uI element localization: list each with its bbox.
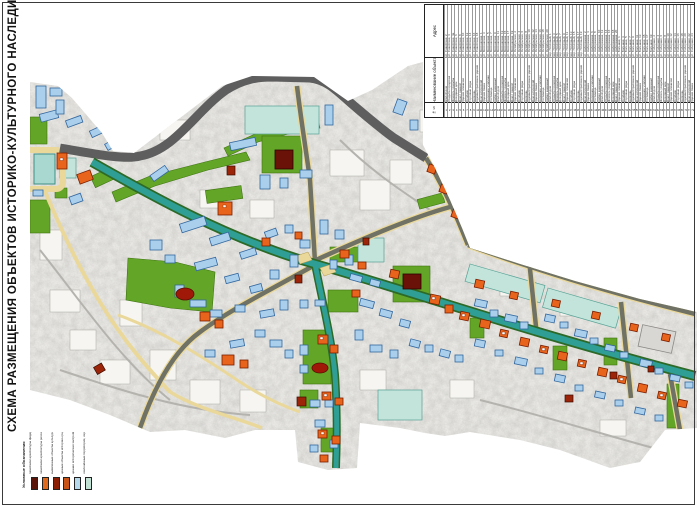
entry-name: Дом купеческий	[532, 57, 534, 102]
entry-address: ул. Большая, 17	[646, 5, 648, 57]
table-entry-column: ул. Соборная, 6Флигель усадьбы63	[659, 5, 662, 117]
entry-name: Амбар каменный	[546, 57, 548, 102]
entry-address: ул. Набережная, 18	[612, 5, 614, 57]
entry-name: Дом с лавкой	[563, 57, 565, 102]
legend-item-label: памятники архитектуры регионального знач…	[40, 432, 43, 474]
entry-name: Усадьба городская	[657, 57, 659, 102]
entry-address: ул. Советская, 8	[459, 5, 461, 57]
entry-name: Гостиница	[490, 57, 492, 102]
table-entry-column: ул. Большая, 9Административное здание55	[631, 5, 634, 117]
table-entry-column: ул. Октябрьская, 2Здание гимназии21	[513, 5, 516, 117]
entry-name: Дом купеческий	[480, 57, 482, 102]
entry-address: ул. Соборная, 6	[660, 5, 662, 57]
legend-item-swatch	[74, 477, 81, 490]
table-entry-column: пер. Почтовый, 5Флигель усадьбы33	[555, 5, 558, 117]
entry-name: Торговые ряды	[573, 57, 575, 102]
entry-name: Здание гимназии	[618, 57, 620, 102]
entry-name: Церковь	[577, 57, 579, 102]
legend-item-label: ценные объекты историко-градостроительно…	[61, 432, 64, 474]
entry-name: Гостиница	[594, 57, 596, 102]
legend-item-swatch	[42, 477, 49, 490]
entry-address: ул. Московская, 5	[487, 5, 489, 57]
entry-name: Здание гимназии	[670, 57, 672, 102]
entry-address: ул. Московская, 17	[507, 5, 509, 57]
entry-name: Торговые ряды	[521, 57, 523, 102]
table-entry-column: ул. Московская, 15Флигель усадьбы18	[503, 5, 506, 117]
entry-address: ул. Соборная, 12	[670, 5, 672, 57]
legend-item-swatch	[53, 477, 60, 490]
entry-name: Жилой дом	[445, 57, 447, 102]
table-entry-column: ул. Октябрьская, 6Торговые ряды23	[520, 5, 523, 117]
table-entry-column: ул. Соборная, 10Дом с лавкой65	[666, 5, 669, 117]
entry-address: ул. Советская, 16	[473, 5, 475, 57]
entry-address: ул. Набережная, 12	[601, 5, 603, 57]
entry-address: ул. Набережная, 4	[587, 5, 589, 57]
table-entry-column: ул. Набережная, 4Здание банка42	[586, 5, 589, 117]
table-entry-column: ул. Большая, 3Особняк52	[621, 5, 624, 117]
entry-name: Доходный дом	[507, 57, 509, 102]
table-entry-column: ул. Большая, 15Народное училище58	[642, 5, 645, 117]
entry-address: пер. Почтовый, 5	[556, 5, 558, 57]
table-entry-column: ул. Соборная, 20Административное здание7…	[683, 5, 686, 117]
entry-name: Административное здание	[580, 57, 582, 102]
entry-address: ул. Октябрьская, 10	[528, 5, 530, 57]
entry-address: ул. Московская, 11	[497, 5, 499, 57]
table-entry-column: ул. Октябрьская, 4Особняк22	[517, 5, 520, 117]
entry-address: ул. Октябрьская, 14	[535, 5, 537, 57]
entry-address: ул. Советская, 12	[466, 5, 468, 57]
legend-item-swatch	[63, 477, 70, 490]
entry-name: Здание банка	[483, 57, 485, 102]
entry-address: ул. Октябрьская, 16	[539, 5, 541, 57]
entry-name: Здание банка	[587, 57, 589, 102]
table-entry-column: пер. Почтовый, 7Доходный дом34	[558, 5, 561, 117]
table-entry-column: ул. Октябрьская, 12Дом купеческий26	[531, 5, 534, 117]
entry-name: Флигель усадьбы	[608, 57, 610, 102]
table-entry-column: пер. Почтовый, 13Особняк37	[569, 5, 572, 117]
legend-item-swatch	[85, 477, 92, 490]
entry-address: ул. Октябрьская, 12	[532, 5, 534, 57]
table-entry-column: ул. Московская, 5Народное училище13	[486, 5, 489, 117]
entry-name: Амбар каменный	[650, 57, 652, 102]
entry-address: ул. Советская, 4а	[452, 5, 454, 57]
table-entry-column: пер. Почтовый, 9Дом с лавкой35	[562, 5, 565, 117]
table-entry-column: ул. Набережная, 16Флигель усадьбы48	[607, 5, 610, 117]
entry-name: Особняк	[466, 57, 468, 102]
entry-address: ул. Советская, 14	[469, 5, 471, 57]
table-entry-column: ул. Московская, 3Здание банка12	[482, 5, 485, 117]
table-entry-column: ул. Московская, 11Жилой дом16	[496, 5, 499, 117]
entry-address: пер. Почтовый, 1	[549, 5, 551, 57]
entry-address: ул. Набережная, 16	[608, 5, 610, 57]
table-entry-column: ул. Советская, 8Дом с лавкой5	[458, 5, 461, 117]
entry-address: ул. Большая, 5	[625, 5, 627, 57]
entry-name: Доходный дом	[612, 57, 614, 102]
entry-address: пер. Почтовый, 15	[573, 5, 575, 57]
entry-address: ул. Московская, 1	[480, 5, 482, 57]
entry-address: ул. Московская, 15	[504, 5, 506, 57]
entry-address: ул. Большая, 11	[636, 5, 638, 57]
legend-item-label: выявленные объекты культурного наследия	[51, 432, 54, 474]
entry-name: Народное училище	[539, 57, 541, 102]
table-entry-column: пер. Почтовый, 15Торговые ряды38	[572, 5, 575, 117]
table-header-name: Наименование объекта	[432, 57, 437, 102]
entry-address: пер. Почтовый, 11	[566, 5, 568, 57]
legend-item-swatch	[31, 477, 38, 490]
entry-address: пер. Почтовый, 19	[580, 5, 582, 57]
table-entry-column: ул. Октябрьская, 10Административное здан…	[527, 5, 530, 117]
entry-name: Церковь	[681, 57, 683, 102]
table-entry-column: ул. Большая, 7Церковь54	[628, 5, 631, 117]
entry-name: Особняк	[570, 57, 572, 102]
entry-name: Флигель усадьбы	[660, 57, 662, 102]
table-entry-column: ул. Московская, 17Доходный дом19	[506, 5, 509, 117]
entry-name: Дом купеческий	[636, 57, 638, 102]
entry-name: Жилой дом	[653, 57, 655, 102]
table-entry-column: ул. Московская, 13Усадьба городская17	[500, 5, 503, 117]
entry-number: 72	[691, 102, 693, 117]
table-header-column: Адрес Наименование объекта № п/п	[425, 5, 444, 117]
entry-address: ул. Набережная, 14	[605, 5, 607, 57]
table-entry-column: ул. Соборная, 14Особняк67	[673, 5, 676, 117]
table-entry-column: ул. Советская, 4аФлигель усадьбы3	[451, 5, 454, 117]
entry-name: Церковь	[629, 57, 631, 102]
entry-name: Административное здание	[476, 57, 478, 102]
entry-address: ул. Большая, 7	[629, 5, 631, 57]
table-entry-column: ул. Московская, 9Амбар каменный15	[493, 5, 496, 117]
table-header-address: Адрес	[432, 25, 437, 37]
heritage-objects-table: Адрес Наименование объекта № п/п ул. Сов…	[424, 4, 695, 118]
entry-address: ул. Октябрьская, 4	[518, 5, 520, 57]
table-entry-column: ул. Соборная, 12Здание гимназии66	[669, 5, 672, 117]
table-entry-column: ул. Набережная, 20Дом с лавкой50	[614, 5, 617, 117]
table-entry-column: пер. Почтовый, 19Административное здание…	[579, 5, 582, 117]
entry-name: Здание гимназии	[462, 57, 464, 102]
entry-address: ул. Соборная, 16	[677, 5, 679, 57]
table-entry-column: ул. Октябрьская, 8Церковь24	[524, 5, 527, 117]
table-entry-column: ул. Набережная, 8Гостиница44	[593, 5, 596, 117]
table-entry-column: ул. Соборная, 16Торговые ряды68	[676, 5, 679, 117]
entry-name: Торговые ряды	[625, 57, 627, 102]
entry-name: Торговые ряды	[469, 57, 471, 102]
entry-address: ул. Большая, 19	[650, 5, 652, 57]
entry-name: Усадьба городская	[501, 57, 503, 102]
entry-address: ул. Набережная, 2	[584, 5, 586, 57]
entry-name: Здание гимназии	[566, 57, 568, 102]
legend-item-label: озеленённые территории, охраняемый ландш…	[83, 432, 86, 474]
table-entry-column: ул. Октябрьская, 20Амбар каменный30	[545, 5, 548, 117]
entry-name: Доходный дом	[455, 57, 457, 102]
entry-name: Флигель усадьбы	[556, 57, 558, 102]
entry-address: ул. Октябрьская, 18	[542, 5, 544, 57]
entry-address: ул. Октябрьская, 2	[514, 5, 516, 57]
legend-item-label: ценная историческая застройка	[72, 432, 75, 474]
entry-name: Особняк	[518, 57, 520, 102]
entry-address: ул. Большая, 15	[643, 5, 645, 57]
entry-name: Здание банка	[639, 57, 641, 102]
entry-name: Дом купеческий	[584, 57, 586, 102]
entry-name: Дом с лавкой	[511, 57, 513, 102]
table-header-num: № п/п	[432, 106, 436, 115]
table-entry-column: ул. Советская, 10Здание гимназии6	[461, 5, 464, 117]
map-sheet: СХЕМА РАЗМЕЩЕНИЯ ОБЪЕКТОВ ИСТОРИКО-КУЛЬТ…	[0, 0, 697, 507]
table-entry-columns: ул. Советская, 2Жилой дом1ул. Советская,…	[444, 5, 694, 117]
legend: Условные обозначения памятники архитекту…	[26, 430, 136, 494]
entry-name: Дом с лавкой	[667, 57, 669, 102]
table-entry-column: ул. Октябрьская, 18Гостиница29	[541, 5, 544, 117]
entry-address: ул. Соборная, 4	[657, 5, 659, 57]
entry-name: Жилой дом	[549, 57, 551, 102]
entry-name: Жилой дом	[601, 57, 603, 102]
entry-address: пер. Почтовый, 9	[563, 5, 565, 57]
table-entry-column: ул. Советская, 16Церковь9	[472, 5, 475, 117]
table-entry-column: пер. Почтовый, 11Здание гимназии36	[565, 5, 568, 117]
table-entry-column: ул. Соборная, 22Дом купеческий71	[687, 5, 690, 117]
entry-name: Здание гимназии	[514, 57, 516, 102]
entry-address: ул. Советская, 18	[476, 5, 478, 57]
entry-address: ул. Набережная, 20	[615, 5, 617, 57]
entry-name: Административное здание	[528, 57, 530, 102]
entry-address: ул. Соборная, 24	[691, 5, 693, 57]
table-entry-column: ул. Большая, 13Здание банка57	[638, 5, 641, 117]
table-entry-column: пер. Почтовый, 17Церковь39	[576, 5, 579, 117]
entry-address: ул. Большая, 9	[632, 5, 634, 57]
table-entry-column: ул. Московская, 19Дом с лавкой20	[510, 5, 513, 117]
entry-address: ул. Советская, 4	[448, 5, 450, 57]
table-entry-column: ул. Соборная, 24Здание банка72	[690, 5, 693, 117]
entry-name: Особняк	[622, 57, 624, 102]
entry-address: ул. Октябрьская, 8	[525, 5, 527, 57]
entry-name: Административное здание	[632, 57, 634, 102]
entry-name: Здание банка	[535, 57, 537, 102]
entry-name: Народное училище	[487, 57, 489, 102]
entry-name: Доходный дом	[559, 57, 561, 102]
entry-address: ул. Соборная, 22	[688, 5, 690, 57]
entry-name: Усадьба городская	[605, 57, 607, 102]
entry-name: Дом купеческий	[688, 57, 690, 102]
entry-name: Гостиница	[542, 57, 544, 102]
table-entry-column: ул. Советская, 14Торговые ряды8	[468, 5, 471, 117]
table-entry-column: ул. Большая, 19Амбар каменный60	[649, 5, 652, 117]
table-entry-column: пер. Почтовый, 3Усадьба городская32	[552, 5, 555, 117]
entry-address: пер. Почтовый, 17	[577, 5, 579, 57]
entry-address: ул. Большая, 3	[622, 5, 624, 57]
table-entry-column: ул. Набережная, 14Усадьба городская47	[604, 5, 607, 117]
table-entry-column: ул. Большая, 5Торговые ряды53	[624, 5, 627, 117]
legend-title: Условные обозначения	[21, 432, 26, 488]
entry-name: Торговые ряды	[677, 57, 679, 102]
entry-address: ул. Соборная, 8	[664, 5, 666, 57]
table-entry-column: ул. Московская, 1Дом купеческий11	[479, 5, 482, 117]
entry-address: ул. Соборная, 10	[667, 5, 669, 57]
table-entry-column: ул. Октябрьская, 16Народное училище28	[538, 5, 541, 117]
entry-name: Народное училище	[643, 57, 645, 102]
entry-name: Жилой дом	[497, 57, 499, 102]
entry-address: ул. Советская, 2	[445, 5, 447, 57]
entry-address: ул. Большая, 13	[639, 5, 641, 57]
entry-address: ул. Московская, 3	[483, 5, 485, 57]
table-entry-column: ул. Советская, 4Усадьба городская2	[447, 5, 450, 117]
table-entry-column: ул. Большая, 17Гостиница59	[645, 5, 648, 117]
table-entry-column: ул. Большая, 11Дом купеческий56	[635, 5, 638, 117]
table-entry-column: ул. Набережная, 2Дом купеческий41	[583, 5, 586, 117]
entry-address: ул. Соборная, 20	[684, 5, 686, 57]
entry-address: ул. Соборная, 18	[681, 5, 683, 57]
table-entry-column: ул. Набережная, 10Амбар каменный45	[597, 5, 600, 117]
entry-name: Усадьба городская	[448, 57, 450, 102]
entry-address: ул. Соборная, 2	[653, 5, 655, 57]
entry-address: ул. Московская, 7	[490, 5, 492, 57]
legend-item-label: памятники архитектуры федерального значе…	[29, 432, 32, 474]
entry-address: пер. Почтовый, 7	[559, 5, 561, 57]
table-entry-column: ул. Соборная, 18Церковь69	[680, 5, 683, 117]
entry-name: Административное здание	[684, 57, 686, 102]
entry-address: пер. Почтовый, 3	[553, 5, 555, 57]
entry-address: ул. Набережная, 8	[594, 5, 596, 57]
table-entry-column: пер. Почтовый, 1Жилой дом31	[548, 5, 551, 117]
table-entry-column: ул. Октябрьская, 14Здание банка27	[534, 5, 537, 117]
table-entry-column: ул. Соборная, 8Доходный дом64	[663, 5, 666, 117]
table-entry-column: ул. Набережная, 12Жилой дом46	[600, 5, 603, 117]
entry-address: ул. Советская, 10	[462, 5, 464, 57]
entry-address: ул. Октябрьская, 20	[546, 5, 548, 57]
entry-address: пер. Почтовый, 13	[570, 5, 572, 57]
entry-name: Усадьба городская	[553, 57, 555, 102]
entry-name: Народное училище	[591, 57, 593, 102]
table-entry-column: ул. Советская, 18Административное здание…	[475, 5, 478, 117]
entry-address: ул. Октябрьская, 6	[521, 5, 523, 57]
table-entry-column: ул. Соборная, 4Усадьба городская62	[656, 5, 659, 117]
table-entry-column: ул. Большая, 1Здание гимназии51	[617, 5, 620, 117]
table-entry-column: ул. Соборная, 2Жилой дом61	[652, 5, 655, 117]
entry-name: Флигель усадьбы	[504, 57, 506, 102]
entry-address: ул. Соборная, 14	[674, 5, 676, 57]
table-entry-column: ул. Советская, 2Жилой дом1	[444, 5, 447, 117]
table-entry-column: ул. Набережная, 18Доходный дом49	[611, 5, 614, 117]
entry-address: ул. Московская, 13	[501, 5, 503, 57]
entry-address: ул. Набережная, 6	[591, 5, 593, 57]
entry-name: Дом с лавкой	[459, 57, 461, 102]
entry-name: Здание банка	[691, 57, 693, 102]
table-entry-column: ул. Советская, 6Доходный дом4	[454, 5, 457, 117]
entry-address: ул. Советская, 6	[455, 5, 457, 57]
entry-name: Дом с лавкой	[615, 57, 617, 102]
entry-name: Церковь	[525, 57, 527, 102]
entry-address: ул. Московская, 19	[511, 5, 513, 57]
entry-address: ул. Московская, 9	[494, 5, 496, 57]
table-entry-column: ул. Набережная, 6Народное училище43	[590, 5, 593, 117]
table-entry-column: ул. Московская, 7Гостиница14	[489, 5, 492, 117]
entry-name: Амбар каменный	[598, 57, 600, 102]
entry-name: Гостиница	[646, 57, 648, 102]
entry-address: ул. Набережная, 10	[598, 5, 600, 57]
entry-address: ул. Большая, 1	[618, 5, 620, 57]
entry-name: Амбар каменный	[494, 57, 496, 102]
table-entry-column: ул. Советская, 12Особняк7	[465, 5, 468, 117]
entry-name: Особняк	[674, 57, 676, 102]
entry-name: Доходный дом	[664, 57, 666, 102]
entry-name: Церковь	[473, 57, 475, 102]
entry-name: Флигель усадьбы	[452, 57, 454, 102]
